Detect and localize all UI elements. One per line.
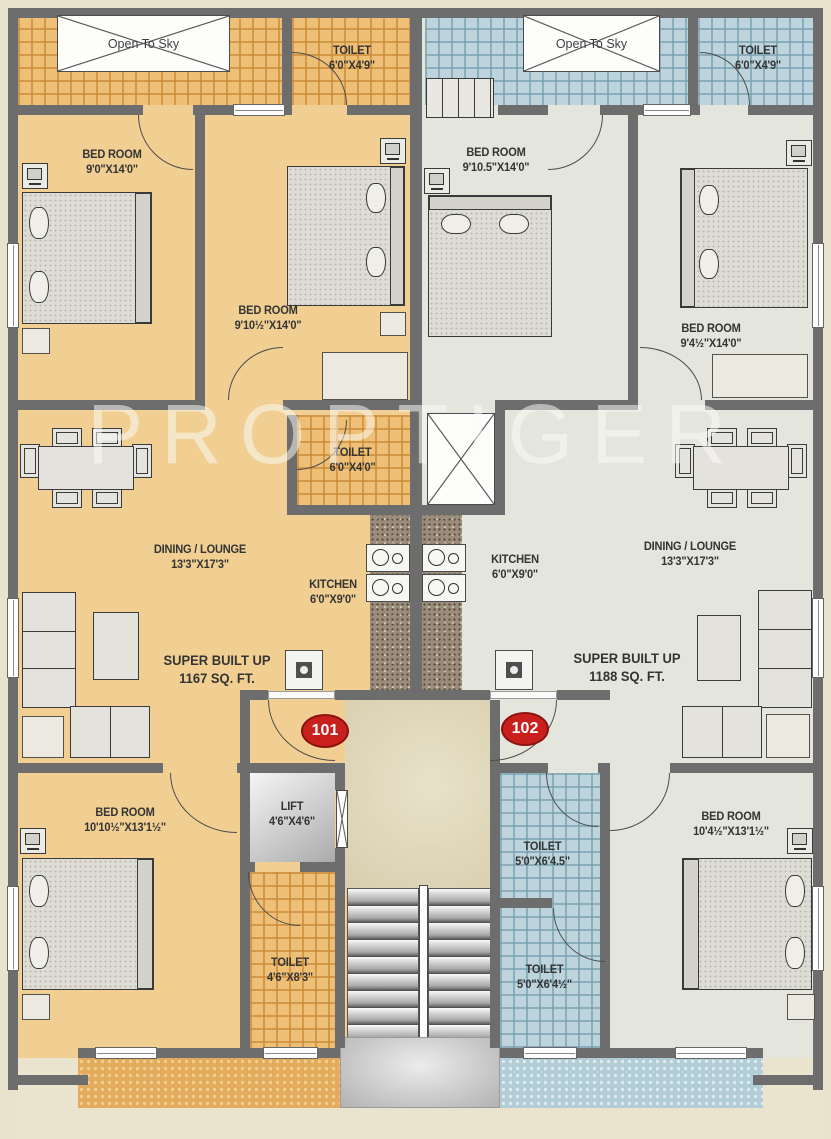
- room-label-dining-left: DINING / LOUNGE13'3"X17'3": [104, 543, 296, 573]
- balcony-left: [78, 1058, 340, 1108]
- window: [675, 1047, 747, 1059]
- pillow: [441, 214, 471, 234]
- stove: [422, 574, 466, 602]
- wall: [237, 763, 345, 773]
- wall: [557, 690, 610, 700]
- room-label-toilet-top-left: TOILET6'0"X4'9": [299, 44, 405, 74]
- room-label-bedroom-3-right: BED ROOM10'4½"X13'1½": [659, 810, 803, 840]
- room-label-toilet-top-right: TOILET6'0"X4'9": [705, 44, 811, 74]
- chair: [675, 444, 695, 478]
- sofa-two-seater: [682, 706, 762, 758]
- wall: [18, 1075, 88, 1085]
- bed: [22, 858, 154, 990]
- window: [523, 1047, 577, 1059]
- sofa-two-seater: [70, 706, 150, 758]
- wall: [287, 415, 297, 515]
- wall: [705, 400, 813, 410]
- wall: [498, 105, 548, 115]
- wall: [283, 400, 410, 410]
- duct-shaft: [427, 413, 495, 505]
- headboard: [135, 193, 151, 323]
- lobby-floor: [345, 700, 500, 890]
- chair: [52, 428, 82, 448]
- side-table: [22, 328, 50, 354]
- wall: [282, 15, 292, 105]
- wall: [748, 105, 813, 115]
- sofa-three-seater: [22, 592, 76, 708]
- side-table: [787, 994, 815, 1020]
- pillow: [29, 271, 49, 303]
- room-label-toilet-right-a: TOILET5'0"X6'4.5": [492, 840, 593, 870]
- wall: [18, 105, 143, 115]
- pillow: [699, 185, 719, 215]
- room-label-lift: LIFT4'6"X4'6": [244, 800, 340, 830]
- room-label-bedroom-2-left: BED ROOM9'10½"X14'0": [196, 304, 340, 334]
- bed: [680, 168, 808, 308]
- open-to-sky-right: Open To Sky: [523, 15, 660, 72]
- wall: [18, 400, 205, 410]
- window: [7, 886, 19, 971]
- wall: [240, 862, 255, 872]
- window: [263, 1047, 318, 1059]
- wall: [195, 115, 205, 400]
- unit-number-badge-101: 101: [301, 714, 349, 748]
- room-label-bedroom-1-left: BED ROOM9'0"X14'0": [40, 148, 184, 178]
- closet: [712, 354, 808, 398]
- headboard: [429, 196, 551, 210]
- pillow: [29, 875, 49, 907]
- pillow: [785, 875, 805, 907]
- room-label-bedroom-2-right: BED ROOM9'4½"X14'0": [639, 322, 783, 352]
- chair: [20, 444, 40, 478]
- window: [95, 1047, 157, 1059]
- open-to-sky-left: Open To Sky: [57, 15, 230, 72]
- stair-flight-left: [347, 888, 419, 1040]
- side-table: [766, 714, 810, 758]
- headboard: [681, 169, 695, 307]
- window: [7, 243, 19, 328]
- wall: [598, 763, 610, 773]
- tv-icon: [786, 140, 812, 166]
- tv-icon: [380, 138, 406, 164]
- pillow: [499, 214, 529, 234]
- wall: [688, 15, 698, 105]
- wall: [495, 400, 638, 410]
- chair: [787, 444, 807, 478]
- stair-landing: [340, 1037, 500, 1108]
- room-label-toilet-mid-left: TOILET6'0"X4'0": [297, 446, 407, 476]
- wardrobe: [426, 78, 494, 118]
- pillow: [29, 937, 49, 969]
- chair: [92, 488, 122, 508]
- wall: [287, 505, 505, 515]
- side-table: [22, 716, 64, 758]
- kitchen-sink: [495, 650, 533, 690]
- wall: [18, 763, 163, 773]
- open-to-sky-label: Open To Sky: [556, 37, 627, 51]
- stair-flight-right: [428, 888, 498, 1040]
- stove: [366, 544, 410, 572]
- wall: [335, 763, 345, 790]
- room-label-toilet-right-b: TOILET5'0"X6'4½": [494, 963, 595, 993]
- room-label-dining-right: DINING / LOUNGE13'3"X17'3": [594, 540, 786, 570]
- room-label-kitchen-left: KITCHEN6'0"X9'0": [285, 578, 381, 608]
- sofa-three-seater: [758, 590, 812, 708]
- window: [812, 886, 824, 971]
- dining-table: [693, 446, 789, 490]
- door-threshold-102: [490, 691, 557, 699]
- pillow: [366, 183, 386, 213]
- chair: [132, 444, 152, 478]
- wall: [753, 1075, 823, 1085]
- closet: [322, 352, 408, 400]
- dining-table: [38, 446, 134, 490]
- super-built-up-101: SUPER BUILT UP1167 SQ. FT.: [121, 652, 313, 687]
- headboard: [683, 859, 699, 989]
- door-threshold-101: [268, 691, 335, 699]
- chair: [747, 488, 777, 508]
- side-table: [22, 994, 50, 1020]
- window: [812, 243, 824, 328]
- room-label-toilet-bottom-left: TOILET4'6"X8'3": [242, 956, 338, 986]
- chair: [52, 488, 82, 508]
- headboard: [390, 167, 404, 305]
- bed: [287, 166, 405, 306]
- pillow: [366, 247, 386, 277]
- open-to-sky-label: Open To Sky: [108, 37, 179, 51]
- wall: [335, 848, 345, 1048]
- floor-plan: Open To Sky Open To Sky: [0, 0, 831, 1139]
- balcony-right: [500, 1058, 763, 1108]
- chair: [92, 428, 122, 448]
- wall: [300, 862, 345, 872]
- wall: [495, 410, 505, 515]
- headboard: [137, 859, 153, 989]
- bed: [428, 195, 552, 337]
- wall: [347, 105, 413, 115]
- side-table: [380, 312, 406, 336]
- window: [812, 598, 824, 678]
- bed: [22, 192, 152, 324]
- wall: [605, 898, 610, 908]
- window: [643, 104, 691, 116]
- pillow: [785, 937, 805, 969]
- bed: [682, 858, 812, 990]
- super-built-up-102: SUPER BUILT UP1188 SQ. FT.: [531, 650, 723, 685]
- wall: [490, 898, 552, 908]
- wall: [670, 763, 823, 773]
- tv-icon: [20, 828, 46, 854]
- chair: [707, 488, 737, 508]
- room-label-bedroom-1-right: BED ROOM9'10.5"X14'0": [424, 146, 568, 176]
- window: [233, 104, 285, 116]
- chair: [707, 428, 737, 448]
- window: [7, 598, 19, 678]
- room-label-kitchen-right: KITCHEN6'0"X9'0": [467, 553, 563, 583]
- pillow: [699, 249, 719, 279]
- pillow: [29, 207, 49, 239]
- stove: [422, 544, 466, 572]
- stair-railing: [419, 885, 428, 1047]
- wall: [335, 690, 490, 700]
- chair: [747, 428, 777, 448]
- room-label-bedroom-3-left: BED ROOM10'10½"X13'1½": [53, 806, 197, 836]
- unit-number-badge-102: 102: [501, 712, 549, 746]
- wall: [628, 115, 638, 400]
